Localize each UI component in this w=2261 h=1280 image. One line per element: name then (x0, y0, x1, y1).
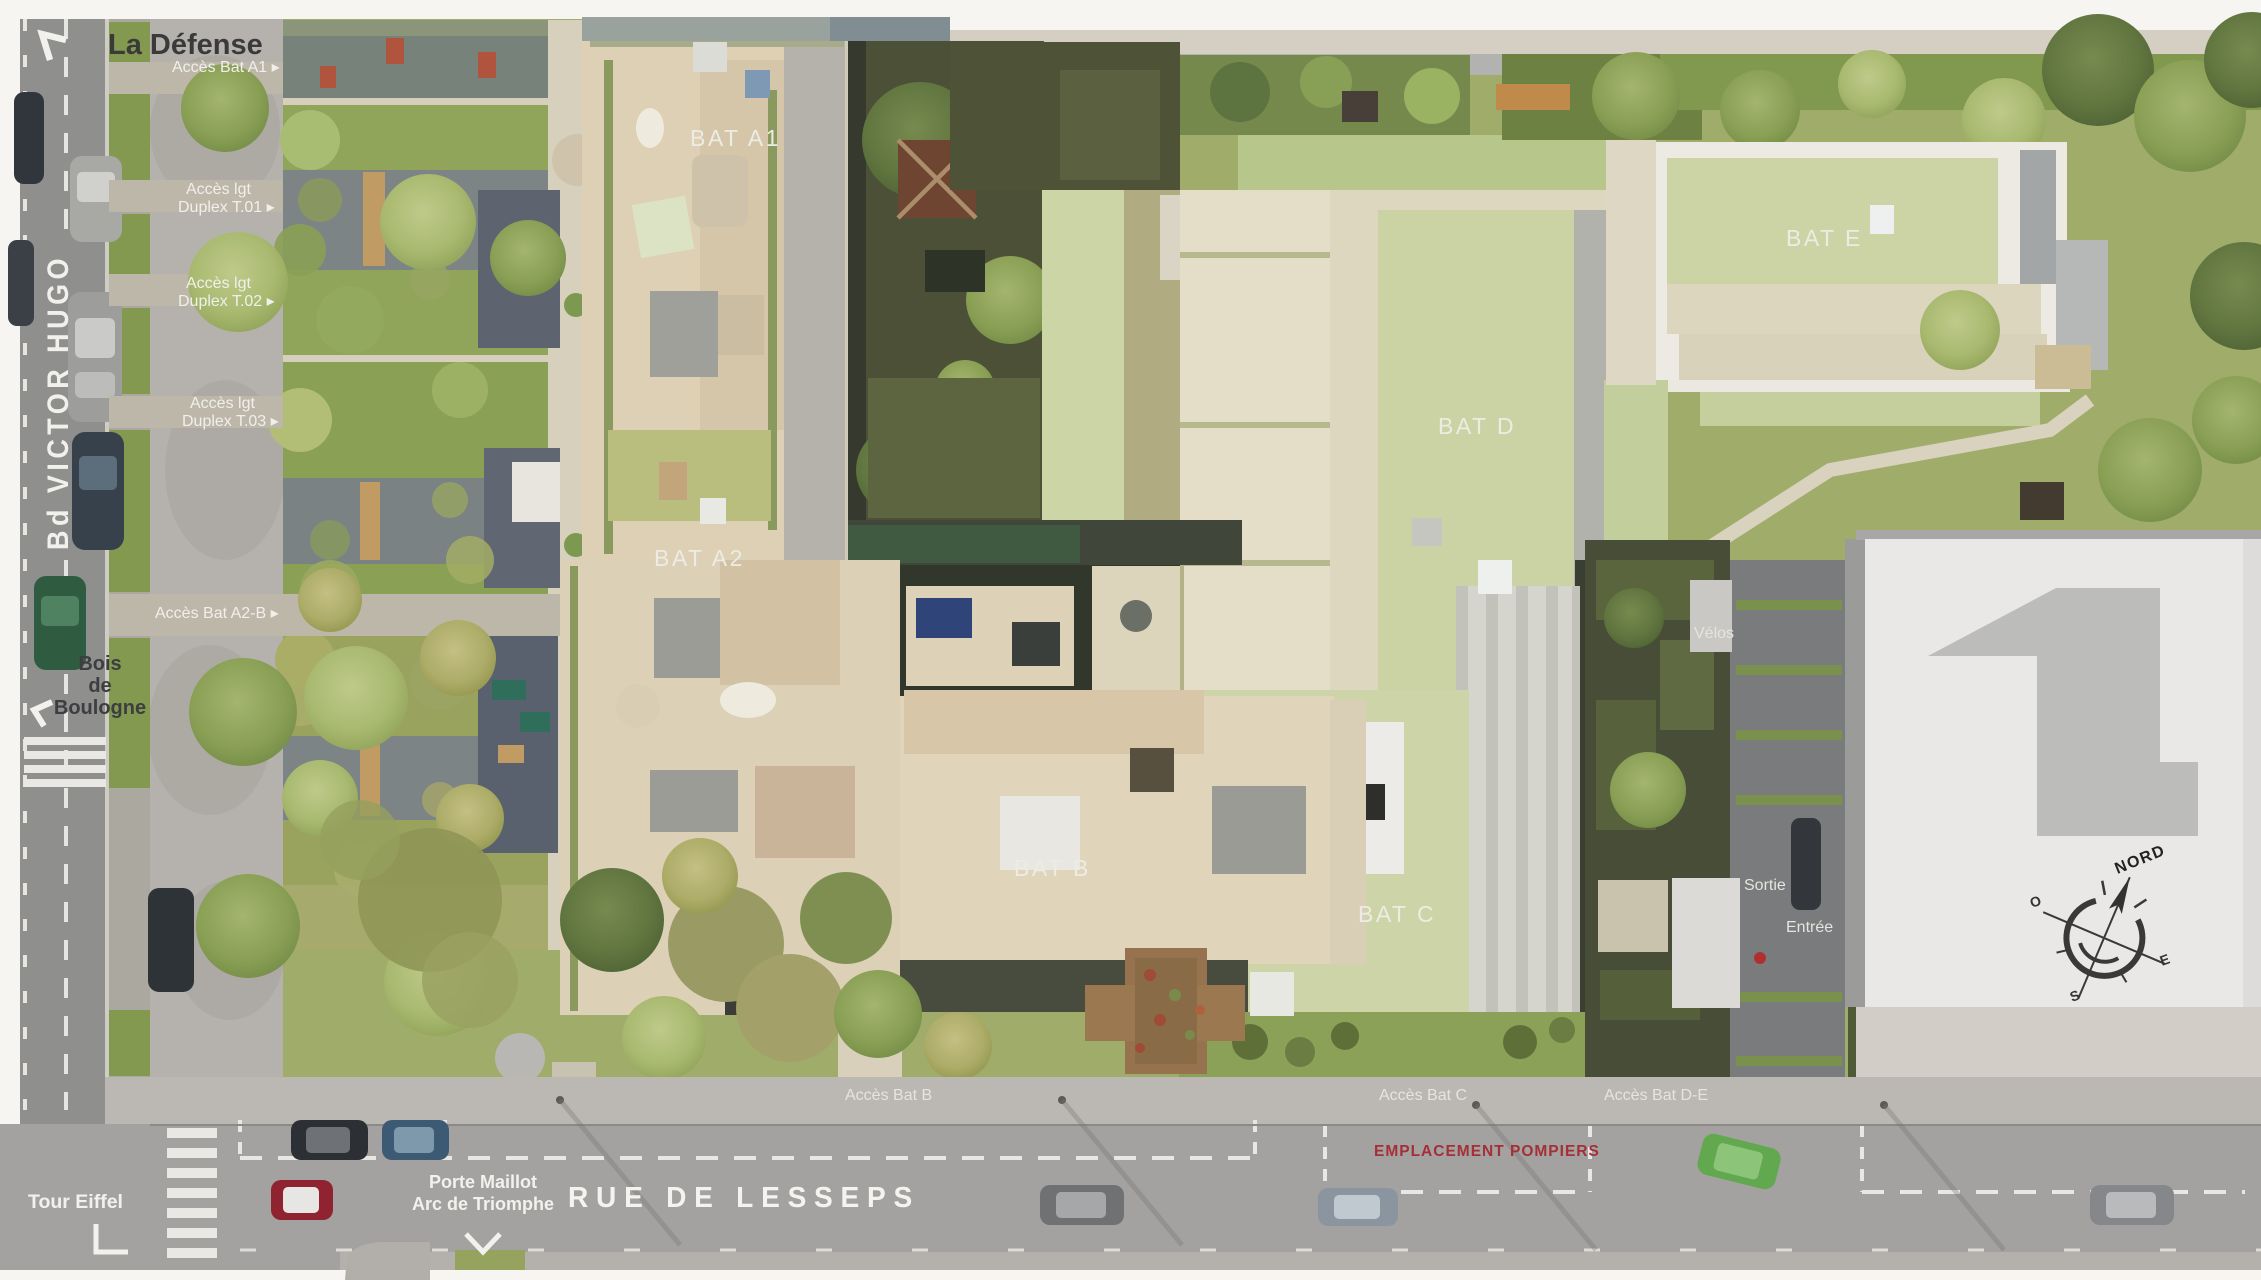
svg-text:BAT B: BAT B (1014, 855, 1091, 881)
svg-text:Accès lgt: Accès lgt (190, 395, 255, 412)
svg-text:La Défense: La Défense (108, 29, 263, 61)
svg-text:EMPLACEMENT POMPIERS: EMPLACEMENT POMPIERS (1374, 1143, 1600, 1160)
svg-text:Entrée: Entrée (1786, 919, 1833, 936)
svg-text:Accès Bat A2-B ▸: Accès Bat A2-B ▸ (155, 605, 279, 622)
svg-text:Porte Maillot: Porte Maillot (429, 1172, 537, 1192)
svg-text:Duplex T.02 ▸: Duplex T.02 ▸ (178, 293, 275, 310)
svg-text:BAT A1: BAT A1 (690, 125, 781, 151)
svg-text:Boulogne: Boulogne (54, 697, 146, 719)
svg-text:Duplex T.01 ▸: Duplex T.01 ▸ (178, 199, 275, 216)
svg-text:BAT D: BAT D (1438, 413, 1516, 439)
svg-text:Accès Bat B: Accès Bat B (845, 1087, 932, 1104)
svg-text:Sortie: Sortie (1744, 877, 1786, 894)
svg-text:Bd VICTOR HUGO: Bd VICTOR HUGO (42, 254, 75, 550)
svg-text:Accès Bat D-E: Accès Bat D-E (1604, 1087, 1708, 1104)
svg-text:Accès lgt: Accès lgt (186, 275, 251, 292)
svg-text:de: de (88, 675, 111, 697)
svg-text:BAT C: BAT C (1358, 901, 1436, 927)
svg-text:Vélos: Vélos (1694, 625, 1734, 642)
svg-text:Tour Eiffel: Tour Eiffel (28, 1191, 123, 1213)
svg-text:BAT A2: BAT A2 (654, 545, 745, 571)
svg-text:BAT E: BAT E (1786, 225, 1863, 251)
svg-text:RUE DE LESSEPS: RUE DE LESSEPS (568, 1182, 920, 1214)
svg-text:Accès Bat C: Accès Bat C (1379, 1087, 1467, 1104)
svg-text:Arc de Triomphe: Arc de Triomphe (412, 1194, 554, 1214)
svg-text:Accès Bat A1 ▸: Accès Bat A1 ▸ (172, 59, 280, 76)
svg-text:Bois: Bois (78, 653, 121, 675)
svg-text:Accès lgt: Accès lgt (186, 181, 251, 198)
svg-text:Duplex T.03 ▸: Duplex T.03 ▸ (182, 413, 279, 430)
